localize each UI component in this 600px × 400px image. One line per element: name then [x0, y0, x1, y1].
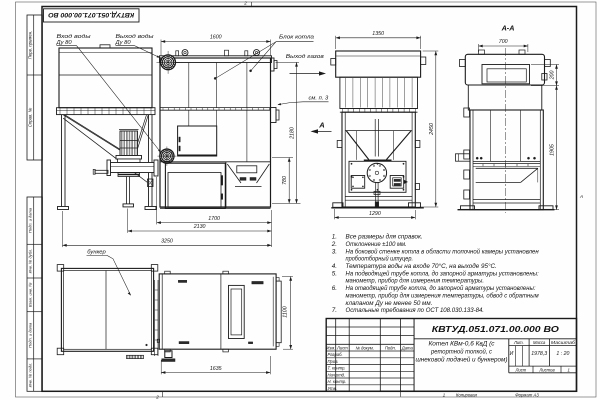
svg-text:6.: 6. — [332, 285, 337, 292]
svg-text:1100: 1100 — [282, 306, 288, 317]
svg-text:А: А — [579, 194, 583, 199]
svg-text:1: 1 — [568, 367, 570, 372]
svg-text:Остальные требования по ОСТ 10: Остальные требования по ОСТ 108.030.133-… — [346, 306, 485, 314]
svg-text:1350: 1350 — [372, 31, 384, 37]
svg-text:На подводящей трубе котла, до: На подводящей трубе котла, до запорной а… — [346, 269, 539, 277]
svg-text:Разраб.: Разраб. — [328, 352, 343, 357]
svg-text:шнековой подачей и бункером): шнековой подачей и бункером) — [416, 356, 508, 363]
svg-text:Подп.: Подп. — [385, 346, 396, 351]
svg-text:Копировал: Копировал — [456, 392, 478, 397]
svg-text:5.: 5. — [332, 270, 337, 277]
svg-text:2130: 2130 — [193, 224, 206, 230]
svg-text:4.: 4. — [332, 263, 337, 270]
svg-text:2: 2 — [155, 395, 159, 400]
svg-text:Лист: Лист — [336, 346, 348, 351]
svg-text:КВТУД.051.071.00.000 ВО: КВТУД.051.071.00.000 ВО — [432, 324, 560, 334]
svg-text:КВТУД.051.071.00.000 ВО: КВТУД.051.071.00.000 ВО — [47, 11, 134, 18]
svg-text:Лит.: Лит. — [513, 340, 524, 345]
svg-text:Лист: Лист — [515, 367, 527, 372]
svg-text:Инв. № дубл.: Инв. № дубл. — [28, 249, 33, 274]
svg-text:Т. контр.: Т. контр. — [328, 366, 346, 371]
svg-text:И: И — [510, 351, 514, 357]
svg-text:Справ. №: Справ. № — [28, 107, 33, 127]
svg-text:Все размеры для справок.: Все размеры для справок. — [346, 233, 423, 241]
svg-text:Температура воды на входе 70°С: Температура воды на входе 70°С, на выход… — [346, 262, 497, 270]
svg-text:Н. контр.: Н. контр. — [328, 379, 347, 384]
svg-text:Подп. и дата: Подп. и дата — [28, 322, 33, 348]
svg-text:Пров.: Пров. — [328, 359, 339, 364]
svg-text:Инв. № подл.: Инв. № подл. — [28, 363, 33, 388]
svg-text:Блок котла: Блок котла — [279, 35, 315, 41]
svg-text:1978,3: 1978,3 — [531, 351, 547, 357]
svg-text:200: 200 — [550, 71, 556, 81]
svg-text:1600: 1600 — [210, 35, 222, 41]
svg-text:1700: 1700 — [208, 216, 220, 222]
svg-text:2.: 2. — [331, 241, 337, 248]
svg-text:Формат А3: Формат А3 — [515, 392, 539, 397]
svg-text:3250: 3250 — [161, 239, 173, 245]
svg-text:Перв. примен.: Перв. примен. — [28, 31, 33, 60]
svg-text:780: 780 — [282, 176, 288, 185]
svg-text:Листов: Листов — [538, 367, 555, 372]
svg-text:Котел КВм-0,6 КвД (с: Котел КВм-0,6 КвД (с — [429, 340, 496, 347]
svg-text:Выход газов: Выход газов — [286, 54, 324, 60]
svg-text:2450: 2450 — [429, 123, 435, 136]
svg-text:2180: 2180 — [290, 127, 296, 140]
svg-text:А: А — [318, 120, 324, 129]
svg-text:2: 2 — [243, 1, 247, 6]
svg-text:см. п. 3: см. п. 3 — [309, 95, 330, 101]
svg-text:Дата: Дата — [401, 346, 414, 351]
svg-text:1: 1 — [443, 392, 446, 397]
svg-text:7.: 7. — [332, 307, 337, 314]
svg-text:Взам. инв. №: Взам. инв. № — [28, 282, 33, 307]
svg-text:манометр, прибор для измерения: манометр, прибор для измерения температу… — [346, 291, 540, 299]
svg-text:1.: 1. — [332, 234, 337, 241]
svg-text:Подп. и дата: Подп. и дата — [28, 207, 33, 233]
svg-text:ретортной топкой, с: ретортной топкой, с — [430, 348, 493, 355]
svg-text:Отклонение ±100 мм.: Отклонение ±100 мм. — [346, 241, 407, 248]
svg-text:На отводящей трубе котла, до з: На отводящей трубе котла, до запорной ар… — [346, 284, 536, 292]
svg-text:Утв.: Утв. — [328, 386, 338, 391]
svg-text:1905: 1905 — [550, 144, 556, 156]
svg-text:1290: 1290 — [369, 211, 381, 217]
svg-text:Масса: Масса — [533, 340, 546, 345]
svg-text:На боковой стенке котла в обла: На боковой стенке котла в области топочн… — [346, 247, 540, 255]
svg-text:Изм.: Изм. — [326, 346, 335, 351]
svg-text:пробоотборный штуцер.: пробоотборный штуцер. — [346, 255, 414, 263]
svg-text:манометр, прибор для измерения: манометр, прибор для измерения температу… — [346, 277, 485, 285]
svg-text:700: 700 — [499, 39, 508, 45]
svg-text:Масштаб: Масштаб — [551, 340, 576, 345]
svg-text:№ докум.: № докум. — [355, 346, 373, 351]
svg-text:1 : 20: 1 : 20 — [556, 351, 569, 357]
svg-text:клапаном Ду не менее 50 мм.: клапаном Ду не менее 50 мм. — [346, 300, 433, 307]
svg-text:А-А: А-А — [501, 24, 515, 33]
svg-text:1635: 1635 — [210, 366, 222, 372]
svg-text:3.: 3. — [332, 248, 337, 255]
svg-text:Нач.отд.: Нач.отд. — [328, 372, 346, 377]
svg-text:бункер: бункер — [87, 250, 106, 256]
